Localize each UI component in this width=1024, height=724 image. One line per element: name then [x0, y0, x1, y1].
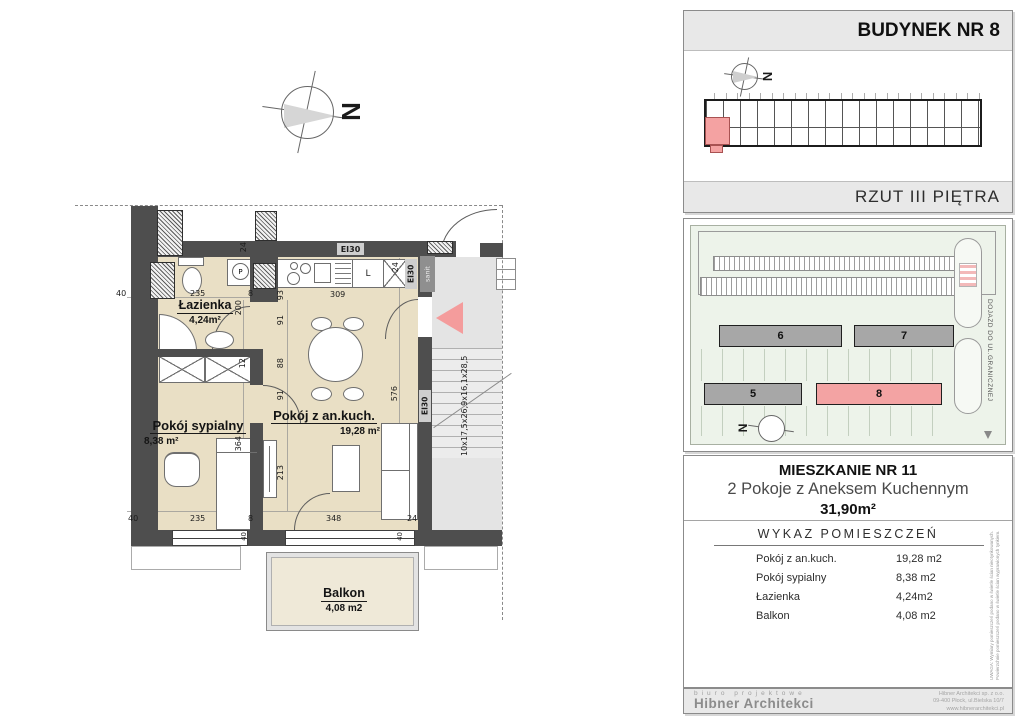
fire-rating-label: EI30	[337, 243, 364, 255]
dimension-label: 8	[248, 514, 253, 523]
logo-company: Hibner Architekci	[694, 696, 814, 711]
room-name: Pokój sypialny	[756, 572, 826, 584]
garden-plots	[701, 349, 951, 381]
toilet-tank	[178, 257, 204, 266]
fire-rating-label: EI30	[419, 390, 431, 422]
building-panel-footer: RZUT III PIĘTRA	[684, 181, 1012, 212]
drawing-sheet: N 10x17,5x26,9x16,1x28,5	[0, 0, 1024, 724]
wall	[480, 243, 503, 257]
road-crossing	[959, 263, 977, 287]
address-line: www.hibnerarchitekci.pl	[933, 706, 1004, 713]
room-name: Pokój z an.kuch.	[756, 553, 837, 565]
neighbor-balcony	[496, 258, 516, 290]
dimension-label: 364	[234, 436, 243, 451]
disclaimer-note: UWAGA: Wymiary pomieszczeń podano w świe…	[989, 522, 1003, 680]
duct-shaft	[150, 262, 175, 299]
corridor-lower	[432, 458, 502, 530]
stair-dimension-label: 10x17,5x26,9x16,1x28,5	[460, 352, 469, 456]
wall	[158, 241, 430, 257]
wall	[250, 349, 263, 385]
hob-burner	[300, 263, 311, 274]
road-arrow-icon	[984, 431, 992, 439]
footer-strip: biuro projektowe Hibner Architekci Hibne…	[683, 688, 1013, 714]
address-block: Hibner Architekci sp. z o.o. 09-400 Płoc…	[933, 691, 1004, 713]
dimension-label: 40	[396, 532, 404, 541]
dimension-label: 348	[326, 514, 341, 523]
site-building-7: 7	[854, 325, 954, 347]
wall	[131, 206, 158, 546]
wardrobe	[159, 356, 205, 383]
bed-pillow-line	[216, 452, 257, 453]
fridge: L	[352, 259, 383, 288]
highlighted-unit	[705, 117, 730, 145]
wall	[432, 530, 502, 546]
duct-shaft	[253, 263, 276, 289]
dimension-label: 576	[390, 386, 399, 401]
dining-table	[308, 327, 363, 382]
room-name: Balkon	[756, 610, 790, 622]
room-area: 4,08 m2	[896, 610, 936, 622]
wall	[158, 349, 250, 357]
apartment-title: MIESZKANIE NR 11	[684, 462, 1012, 479]
divider	[714, 545, 984, 546]
wall	[248, 530, 285, 546]
wall	[415, 530, 432, 546]
slab	[131, 546, 241, 570]
dimension-label: 24	[391, 262, 400, 272]
dimension-label: 91	[276, 390, 285, 400]
highlighted-unit-balcony	[710, 145, 723, 153]
building-title: BUDYNEK NR 8	[857, 20, 1000, 42]
site-building-8-highlighted: 8	[816, 383, 942, 405]
floor-label: RZUT III PIĘTRA	[855, 187, 1000, 207]
kitchen-sink	[314, 263, 331, 283]
site-building-5: 5	[704, 383, 802, 405]
washing-machine-drum: P	[232, 263, 249, 280]
wall	[131, 530, 172, 546]
coffee-table	[332, 445, 360, 492]
apartment-subtitle: 2 Pokoje z Aneksem Kuchennym	[684, 480, 1012, 499]
building-panel: BUDYNEK NR 8 N RZUT III PIĘTRA	[683, 10, 1013, 213]
building-panel-header: BUDYNEK NR 8	[684, 11, 1012, 51]
dimension-label: 200	[234, 300, 243, 315]
address-line: Hibner Architekci sp. z o.o.	[933, 691, 1004, 698]
dimension-label: 91	[276, 315, 285, 325]
dimension-label: 235	[190, 514, 205, 523]
dimension-label: 93	[276, 290, 285, 300]
dimension-label: 40	[240, 532, 248, 541]
dimension-label: 40	[116, 289, 126, 298]
dimension-label: 12	[238, 358, 247, 368]
dimension-label: 309	[330, 290, 345, 299]
hob-burner	[290, 262, 298, 270]
room-name: Łazienka	[756, 591, 800, 603]
site-plan-panel: 6 7 5 8 DOJAZD DO UL.GRANICZNEJ N	[683, 218, 1013, 452]
tv-stand	[263, 440, 277, 498]
dimension-label: 235	[190, 289, 205, 298]
apartment-total-area: 31,90m²	[684, 501, 1012, 518]
dimension-label: 40	[128, 514, 138, 523]
dimension-label: 88	[276, 358, 285, 368]
wall	[418, 337, 432, 530]
duct-shaft	[427, 241, 453, 254]
fire-rating-label: EI30	[405, 259, 417, 289]
dining-chair	[311, 387, 332, 401]
road-label: DOJAZD DO UL.GRANICZNEJ	[986, 299, 993, 429]
slab	[424, 546, 498, 570]
site-building-6: 6	[719, 325, 842, 347]
boundary-dashed-line	[502, 205, 503, 620]
apartment-info-panel: MIESZKANIE NR 11 2 Pokoje z Aneksem Kuch…	[683, 455, 1013, 688]
room-label-living: Pokój z an.kuch. 19,28 m²	[268, 407, 380, 437]
room-area: 8,38 m2	[896, 572, 936, 584]
sofa-cushion-line	[381, 470, 409, 471]
bathroom-sink	[205, 331, 234, 349]
dining-chair	[343, 387, 364, 401]
hob-burner	[287, 272, 300, 285]
sanitary-shaft-label: sanit	[420, 256, 435, 292]
sofa	[381, 423, 418, 520]
parking-row	[700, 277, 968, 296]
entrance-marker	[436, 302, 463, 334]
access-road	[954, 338, 982, 414]
sofa-backrest-line	[409, 423, 410, 520]
divider	[684, 520, 1012, 521]
sink-drainer	[335, 263, 351, 284]
desk-chair	[164, 452, 200, 487]
address-line: 09-400 Płock, ul.Bielska 10/7	[933, 698, 1004, 705]
duct-shaft	[255, 211, 277, 241]
dimension-label: 24	[407, 514, 417, 523]
dimension-label: 213	[276, 465, 285, 480]
room-label-balcony: Balkon 4,08 m2	[306, 584, 382, 614]
room-area: 19,28 m2	[896, 553, 942, 565]
dimension-label: 8	[248, 289, 253, 298]
room-table-title: WYKAZ POMIESZCZEŃ	[684, 527, 1012, 541]
window	[172, 530, 248, 546]
dimension-label: 24	[239, 242, 248, 252]
building-outline	[704, 99, 982, 147]
room-area: 4,24m2	[896, 591, 933, 603]
duct-shaft	[157, 210, 183, 256]
logo-block: biuro projektowe Hibner Architekci	[694, 690, 814, 711]
parking-row	[713, 256, 965, 271]
tv-line	[269, 446, 270, 492]
